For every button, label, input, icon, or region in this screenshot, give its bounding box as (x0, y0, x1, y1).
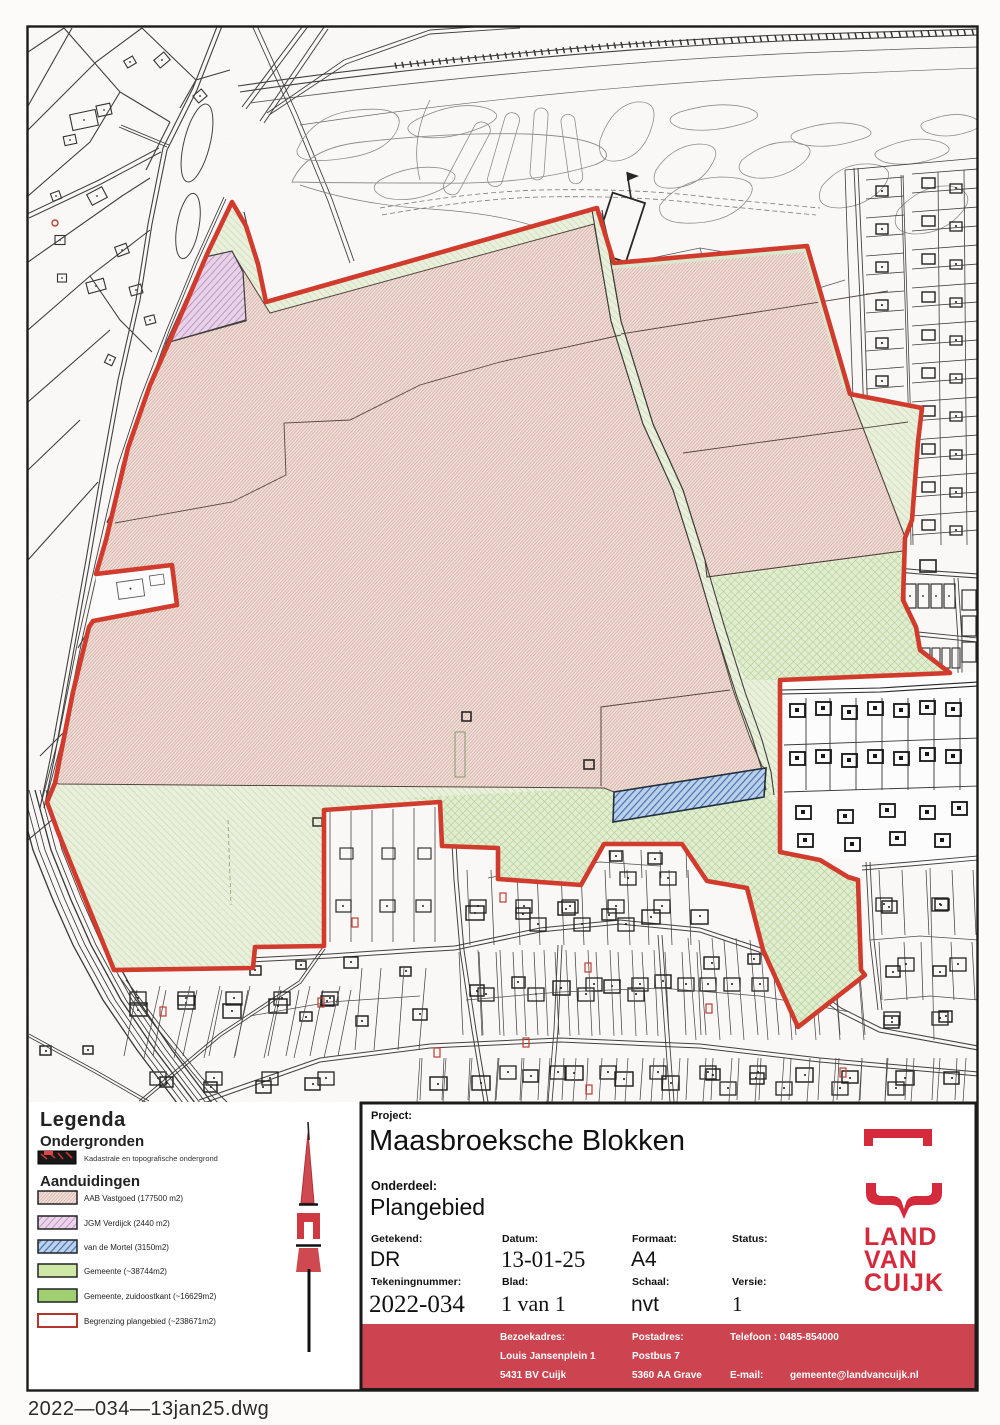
svg-text:Datum:: Datum: (502, 1233, 538, 1245)
svg-text:Gemeente (~38744m2): Gemeente (~38744m2) (84, 1267, 167, 1276)
svg-text:13-01-25: 13-01-25 (501, 1247, 585, 1272)
svg-text:Schaal:: Schaal: (632, 1276, 669, 1288)
svg-text:Aanduidingen: Aanduidingen (40, 1173, 140, 1190)
svg-text:Ondergronden: Ondergronden (40, 1133, 144, 1150)
svg-text:Gemeente, zuidoostkant (~16629: Gemeente, zuidoostkant (~16629m2) (84, 1292, 217, 1301)
svg-text:2022-034: 2022-034 (369, 1291, 465, 1318)
svg-text:Begrenzing plangebied (~23867: Begrenzing plangebied (~238671m2) (84, 1317, 216, 1326)
svg-text:E-mail:: E-mail: (730, 1370, 763, 1381)
svg-text:Getekend:: Getekend: (371, 1233, 422, 1245)
svg-text:Tekeningnummer:: Tekeningnummer: (371, 1276, 461, 1288)
svg-text:5360 AA Grave: 5360 AA Grave (632, 1370, 702, 1381)
svg-text:Legenda: Legenda (40, 1109, 126, 1131)
svg-text:Telefoon : 0485-854000: Telefoon : 0485-854000 (730, 1332, 839, 1343)
svg-text:Onderdeel:: Onderdeel: (371, 1179, 437, 1193)
svg-text:Plangebied: Plangebied (370, 1194, 485, 1220)
svg-text:Postbus 7: Postbus 7 (632, 1351, 680, 1362)
svg-text:5431 BV Cuijk: 5431 BV Cuijk (500, 1370, 567, 1381)
svg-text:nvt: nvt (631, 1293, 659, 1316)
svg-text:AAB Vastgoed (177500 m2): AAB Vastgoed (177500 m2) (84, 1194, 183, 1203)
svg-text:1 van 1: 1 van 1 (501, 1291, 566, 1316)
svg-text:DR: DR (370, 1248, 400, 1271)
svg-text:2022—034—13jan25.dwg: 2022—034—13jan25.dwg (28, 1398, 269, 1420)
svg-text:JGM Verdijck (2440 m2): JGM Verdijck (2440 m2) (84, 1219, 170, 1228)
svg-text:CUIJK: CUIJK (864, 1269, 944, 1297)
svg-text:Maasbroeksche Blokken: Maasbroeksche Blokken (369, 1125, 685, 1157)
svg-text:Formaat:: Formaat: (632, 1233, 677, 1245)
svg-text:gemeente@landvancuijk.nl: gemeente@landvancuijk.nl (790, 1370, 919, 1381)
svg-text:Status:: Status: (732, 1233, 768, 1245)
svg-text:Versie:: Versie: (732, 1276, 766, 1288)
svg-text:Blad:: Blad: (502, 1276, 528, 1288)
svg-text:Bezoekadres:: Bezoekadres: (500, 1332, 565, 1343)
svg-text:1: 1 (732, 1292, 743, 1316)
svg-text:van de Mortel (3150m2): van de Mortel (3150m2) (84, 1243, 169, 1252)
svg-text:A4: A4 (631, 1248, 657, 1271)
svg-text:Project:: Project: (371, 1110, 412, 1122)
svg-text:Louis Jansenplein 1: Louis Jansenplein 1 (500, 1351, 596, 1362)
svg-text:Kadastrale en topografische on: Kadastrale en topografische ondergrond (84, 1154, 218, 1163)
svg-text:Postadres:: Postadres: (632, 1332, 684, 1343)
